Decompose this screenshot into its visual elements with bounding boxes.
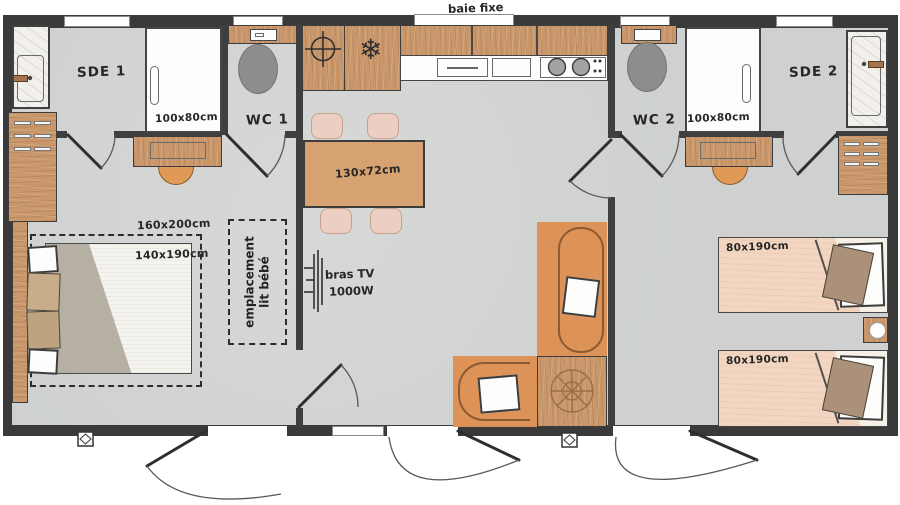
floorplan-canvas: ❄ emplacement lit bébé bbox=[0, 0, 900, 505]
master-cushion-tan bbox=[26, 272, 60, 311]
dresser-right-slot bbox=[863, 142, 879, 146]
dresser-left-slot bbox=[14, 147, 31, 151]
room-label-sde2: SDE 2 bbox=[789, 63, 839, 81]
vanity-sde2-drawer bbox=[700, 142, 756, 159]
master-bed bbox=[45, 243, 192, 374]
shower2-dim-label: 100x80cm bbox=[687, 111, 750, 125]
shower-tray-sde1-handle bbox=[150, 66, 159, 105]
shower-tray-sde2-handle bbox=[742, 64, 751, 103]
door-opening-middle bbox=[387, 426, 458, 436]
toilet-wc2 bbox=[627, 42, 667, 92]
baby-bed-label: emplacement lit bébé bbox=[238, 224, 278, 341]
sink-drain-line bbox=[447, 67, 478, 69]
partition-sde1-wc1 bbox=[221, 25, 228, 135]
bed-main-dim-label: 140x190cm bbox=[135, 247, 209, 263]
dresser-left-slot bbox=[34, 147, 51, 151]
partition-wc2-left bbox=[608, 25, 615, 134]
tv-label: bras TV bbox=[325, 266, 375, 282]
window-top-4 bbox=[776, 16, 833, 27]
partition-right-vertical-low bbox=[608, 197, 615, 426]
baie-fixe-label: baie fixe bbox=[448, 0, 504, 16]
master-pillow-white bbox=[27, 348, 58, 375]
master-pillow-white bbox=[27, 245, 59, 274]
room-label-wc2: WC 2 bbox=[633, 111, 676, 128]
shower-cabin-sde1-handle bbox=[13, 75, 28, 82]
counter-divider bbox=[471, 26, 473, 55]
freezer-icon: ❄ bbox=[359, 36, 382, 64]
kitchen-counter bbox=[400, 25, 608, 56]
wall-left bbox=[3, 15, 12, 436]
sofa-corner-pillow bbox=[478, 374, 521, 413]
master-cushion-tan bbox=[26, 310, 60, 349]
dresser-left-slot bbox=[34, 121, 51, 125]
sofa-pillow bbox=[562, 276, 600, 318]
room-label-wc1: WC 1 bbox=[246, 111, 289, 128]
shower-cabin-sde2-door bbox=[851, 36, 881, 116]
dresser-left bbox=[8, 112, 57, 222]
flush-plate-wc2 bbox=[634, 29, 661, 41]
dresser-left-slot bbox=[14, 134, 31, 138]
dresser-right-slot bbox=[863, 162, 879, 166]
door-opening-left bbox=[208, 426, 287, 436]
partition-h-left-c bbox=[285, 131, 297, 138]
counter-divider bbox=[536, 26, 538, 55]
dresser-right-slot bbox=[844, 162, 860, 166]
baby-label-line1: emplacement bbox=[243, 236, 258, 328]
door-opening-right bbox=[613, 426, 690, 436]
vanity-sde1-drawer bbox=[150, 142, 206, 159]
dresser-right-slot bbox=[844, 152, 860, 156]
dining-chair bbox=[370, 208, 402, 234]
shower1-dim-label: 100x80cm bbox=[155, 111, 218, 125]
window-top-1 bbox=[64, 16, 130, 27]
twin-bed-2-dim-label: 80x190cm bbox=[726, 353, 789, 367]
kitchen-hob bbox=[540, 57, 606, 78]
tv-power-label: 1000W bbox=[329, 283, 374, 299]
toilet-wc1 bbox=[238, 44, 278, 94]
flush-button bbox=[255, 33, 264, 37]
window-bottom-1 bbox=[332, 426, 384, 436]
kitchen-drawer bbox=[492, 58, 531, 77]
partition-h-right-a bbox=[608, 131, 622, 138]
dresser-left-slot bbox=[34, 134, 51, 138]
wall-right bbox=[888, 15, 898, 436]
dresser-right-slot bbox=[844, 142, 860, 146]
nightstand-lamp bbox=[869, 322, 886, 339]
kitchen-sink-unit bbox=[302, 25, 345, 91]
room-label-sde1: SDE 1 bbox=[77, 63, 127, 81]
twin-bed-1-dim-label: 80x190cm bbox=[726, 240, 789, 254]
dining-chair bbox=[320, 208, 352, 234]
dresser-right-slot bbox=[863, 152, 879, 156]
dining-chair bbox=[311, 113, 343, 139]
partition-left-vertical-low bbox=[296, 408, 303, 427]
bed-zone-dim-label: 160x200cm bbox=[137, 217, 211, 233]
baby-label-line2: lit bébé bbox=[258, 236, 273, 328]
corner-table bbox=[537, 356, 607, 427]
dining-chair bbox=[367, 113, 399, 139]
dresser-left-slot bbox=[14, 121, 31, 125]
shower-cabin-sde2-handle bbox=[868, 61, 884, 68]
